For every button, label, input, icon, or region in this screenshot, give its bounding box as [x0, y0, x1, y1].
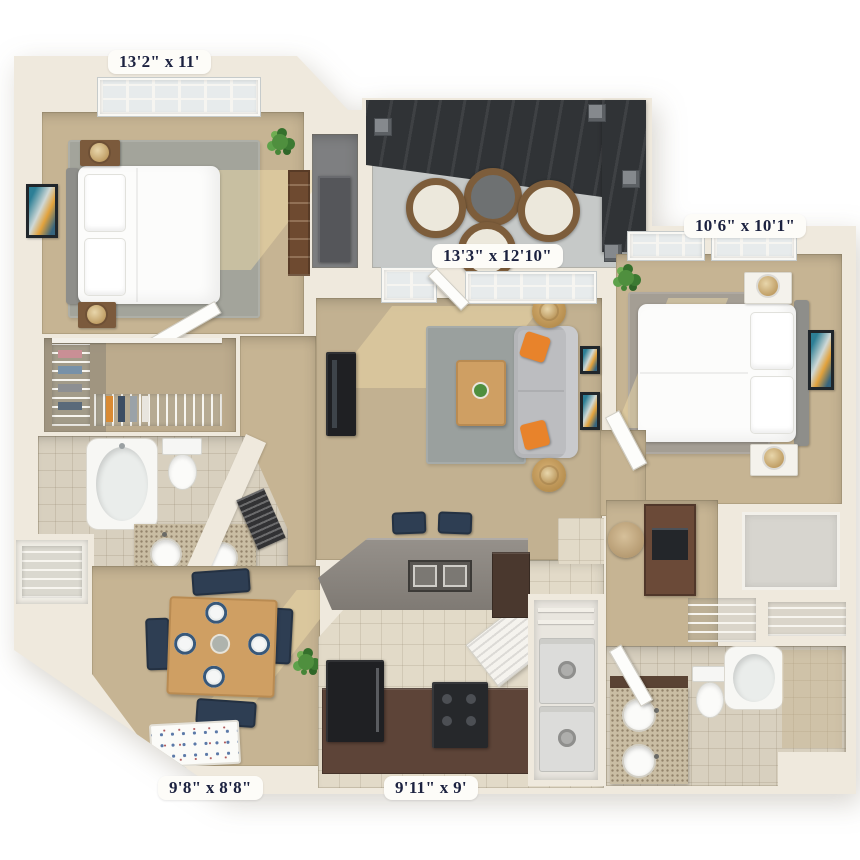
patio-chair [406, 178, 466, 238]
picture [583, 395, 597, 427]
room-dimension-label: 9'11" x 9' [384, 776, 478, 800]
bathtub [86, 438, 158, 530]
duvet-fold [640, 372, 748, 374]
toilet [696, 682, 724, 718]
floor-plan-shadow-wrap [0, 0, 860, 860]
sofa-cushion-split [518, 390, 564, 392]
bar-stool [438, 511, 473, 534]
dinner-plate [203, 665, 226, 688]
clothes-stack [58, 350, 82, 358]
bed-2-pillow [750, 312, 794, 370]
dryer [539, 706, 595, 772]
clothes-stack [58, 384, 82, 392]
tub-faucet [119, 443, 125, 449]
window [98, 78, 260, 116]
desk-chair [608, 522, 644, 558]
hall-tile [558, 518, 604, 564]
duvet-fold [136, 168, 138, 302]
side-table [532, 458, 566, 492]
wall-outline [0, 0, 860, 860]
room-dimension-label: 13'3" x 12'10" [432, 244, 563, 268]
clothes-stack [58, 366, 82, 374]
throw-pillow [519, 331, 552, 364]
faucet [162, 532, 167, 537]
wall-art-canvas [811, 333, 831, 387]
closet-shelf [52, 338, 222, 343]
throw-pillow [519, 419, 551, 451]
sink [150, 538, 182, 570]
burner [442, 694, 452, 704]
patio-table [464, 168, 522, 226]
table-lamp [541, 303, 557, 319]
table-lamp [541, 467, 557, 483]
picture [583, 349, 597, 371]
bar-stool [392, 511, 427, 534]
wire-shelf-rod [94, 394, 222, 426]
fridge-handle [376, 668, 379, 732]
wire-closet [768, 602, 846, 636]
tv-screen [332, 360, 337, 428]
tabletop-plant [474, 384, 487, 397]
hanging-clothes [106, 396, 113, 422]
room-dimension-label: 13'2" x 11' [108, 50, 211, 74]
sink-basin [413, 565, 437, 587]
bed-2-headboard [794, 300, 809, 446]
kitchen-sink [408, 560, 472, 592]
potted-plant [298, 654, 314, 670]
wire-shelf [22, 546, 82, 598]
closet-2-floor [742, 512, 840, 590]
table-lamp [87, 305, 106, 324]
hanging-clothes [142, 396, 149, 422]
bedroom-2-floor [616, 254, 842, 504]
bathroom-2-floor [606, 646, 846, 786]
pergola-post [374, 118, 392, 136]
shower-area [782, 650, 842, 748]
laundry-shelf [538, 608, 594, 612]
entry-doormat [149, 720, 241, 769]
dining-chair [191, 568, 251, 596]
sink-basin [443, 565, 467, 587]
range-stove [432, 682, 488, 748]
bed-1-pillow [84, 174, 126, 232]
sink [622, 744, 656, 778]
washer [539, 638, 595, 704]
washer-door [558, 661, 576, 679]
toilet-tank [162, 438, 202, 455]
burner [442, 716, 452, 726]
faucet [654, 708, 659, 713]
window [466, 272, 596, 303]
laptop [652, 528, 688, 560]
potted-plant [272, 134, 288, 150]
upper-cabinet [492, 552, 530, 618]
bed-2-pillow [750, 376, 794, 434]
dining-table [166, 596, 277, 698]
patio-chair [518, 180, 580, 242]
table-lamp [90, 143, 109, 162]
clothes-stack [58, 402, 82, 410]
refrigerator [326, 660, 384, 742]
picture-frame [580, 346, 600, 374]
water-heater [318, 176, 350, 262]
bathtub [724, 646, 784, 710]
bedroom-1-floor [42, 112, 304, 334]
dryer-door [558, 729, 576, 747]
dinner-plate [174, 632, 197, 655]
walk-in-closet-floor [44, 338, 236, 432]
burner [466, 694, 476, 704]
table-lamp [764, 448, 784, 468]
storage-closet-floor [312, 134, 358, 268]
room-dimension-label: 10'6" x 10'1" [684, 214, 806, 238]
window [382, 268, 436, 302]
coffee-table [456, 360, 506, 426]
tv-stand [326, 352, 356, 436]
laundry-closet [534, 600, 598, 780]
hanging-clothes [130, 396, 137, 422]
dinner-plate [205, 601, 228, 624]
wall-art-canvas [29, 187, 55, 235]
table-centerpiece [212, 636, 229, 653]
bookcase [288, 170, 310, 276]
dinner-plate [248, 633, 271, 656]
pergola-post [588, 104, 606, 122]
hanging-clothes [118, 396, 125, 422]
wall-art [26, 184, 58, 238]
toilet-tank [692, 666, 728, 682]
wire-closet [688, 598, 756, 642]
room-dimension-label: 9'8" x 8'8" [158, 776, 263, 800]
floor-plan: 13'2" x 11' 13'3" x 12'10" 10'6" x 10'1"… [0, 0, 860, 860]
bathtub-basin [96, 447, 148, 521]
pergola-post [622, 170, 640, 188]
laundry-shelf [538, 620, 594, 624]
toilet [168, 454, 197, 490]
dining-room-floor [92, 566, 320, 766]
burner [466, 716, 476, 726]
desk [644, 504, 696, 596]
bathtub-basin [733, 654, 775, 702]
vanity-counter [610, 688, 688, 784]
potted-plant [618, 270, 634, 286]
faucet [654, 754, 659, 759]
linen-closet [16, 540, 88, 604]
picture-frame [580, 392, 600, 430]
table-lamp [758, 276, 778, 296]
bed-1-pillow [84, 238, 126, 296]
wall-art [808, 330, 834, 390]
sofa [514, 326, 578, 458]
